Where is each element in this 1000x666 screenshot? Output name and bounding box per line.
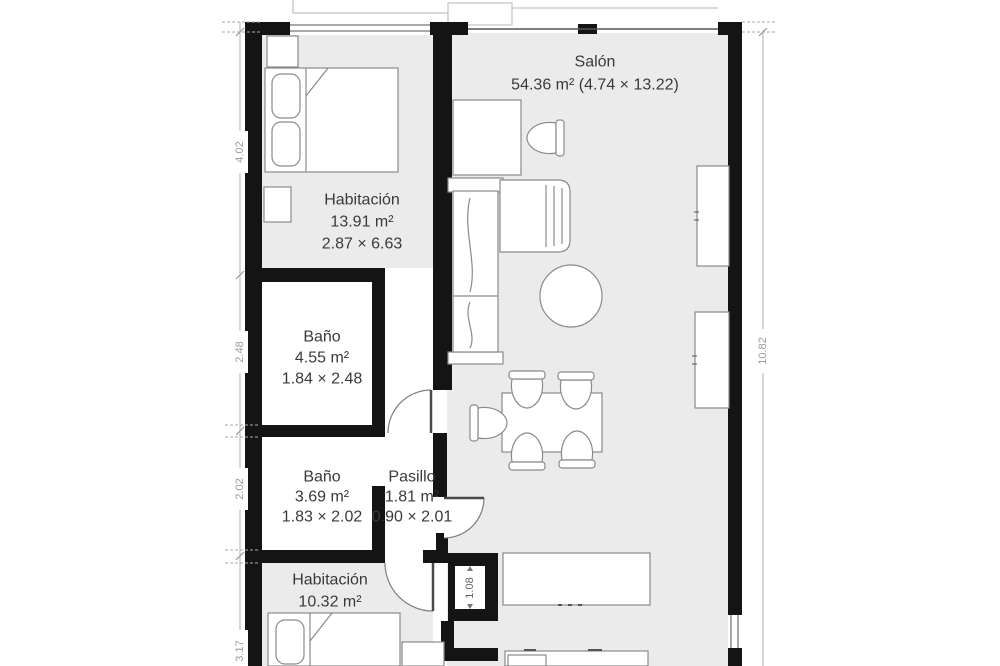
wall-bano2-south [245,550,385,563]
sofa-chaise [500,180,570,252]
dim-left-3: 2.02 [234,478,246,499]
wall-salon-divider [433,35,452,390]
kitchen-sink [508,655,546,666]
wall-top-mid [430,22,468,35]
label-bano1-name: Baño [303,329,340,346]
kitchen-island [503,553,650,605]
wall-bedroom2-jamb [423,550,448,563]
dim-left-1: 4.02 [234,141,246,162]
bed1-pillow-1 [272,74,300,118]
window-right [728,615,742,648]
sofa-arm-top [448,178,503,192]
label-pasillo-dims: 0.90 × 2.01 [372,509,453,526]
dim-left-2: 2.48 [234,341,246,362]
wall-right-upper [728,22,742,615]
nightstand2 [402,642,444,666]
label-bano2-dims: 1.83 × 2.02 [282,509,363,526]
dim-shaft: 1.08 [464,577,476,598]
label-salon-name: Salón [575,54,616,71]
wall-pasillo-east-upper [433,433,447,497]
wardrobe [267,36,298,67]
sofa-arm-bottom [448,352,503,364]
dim-left-4: 3.17 [234,640,246,661]
label-habitacion2-area: 10.32 m² [298,594,362,611]
floorplan-svg: 4.02 2.48 2.02 3.17 10.82 1.08 Salón 54.… [0,0,1000,666]
side-table [453,100,521,175]
coffee-table [540,265,602,327]
window-habitacion1 [290,22,430,35]
wall-unit-lower [695,312,729,408]
wall-right-lower [728,648,742,666]
label-habitacion1-dims: 2.87 × 6.63 [322,236,403,253]
label-salon-area: 54.36 m² (4.74 × 13.22) [511,77,679,94]
sofa-seat [453,191,498,352]
wall-bottom-l-horizontal [441,648,498,661]
wall-habitacion1-south [245,268,385,282]
nightstand1 [264,187,291,222]
label-pasillo-area: 1.81 m² [385,489,440,506]
label-bano1-dims: 1.84 × 2.48 [282,371,363,388]
dim-right-1: 10.82 [757,337,769,365]
label-bano2-name: Baño [303,469,340,486]
floorplan-canvas: 4.02 2.48 2.02 3.17 10.82 1.08 Salón 54.… [0,0,1000,666]
wall-banos-divider [245,425,385,437]
label-habitacion2-name: Habitación [292,572,368,589]
label-habitacion1-name: Habitación [324,192,400,209]
bed1-pillow-2 [272,122,300,166]
label-pasillo-name: Pasillo [388,469,435,486]
wall-unit-upper [697,166,729,266]
label-bano1-area: 4.55 m² [295,350,350,367]
bed2-pillow [276,620,304,664]
label-bano2-area: 3.69 m² [295,489,350,506]
label-habitacion1-area: 13.91 m² [330,214,394,231]
wall-bano1-east [372,282,385,437]
